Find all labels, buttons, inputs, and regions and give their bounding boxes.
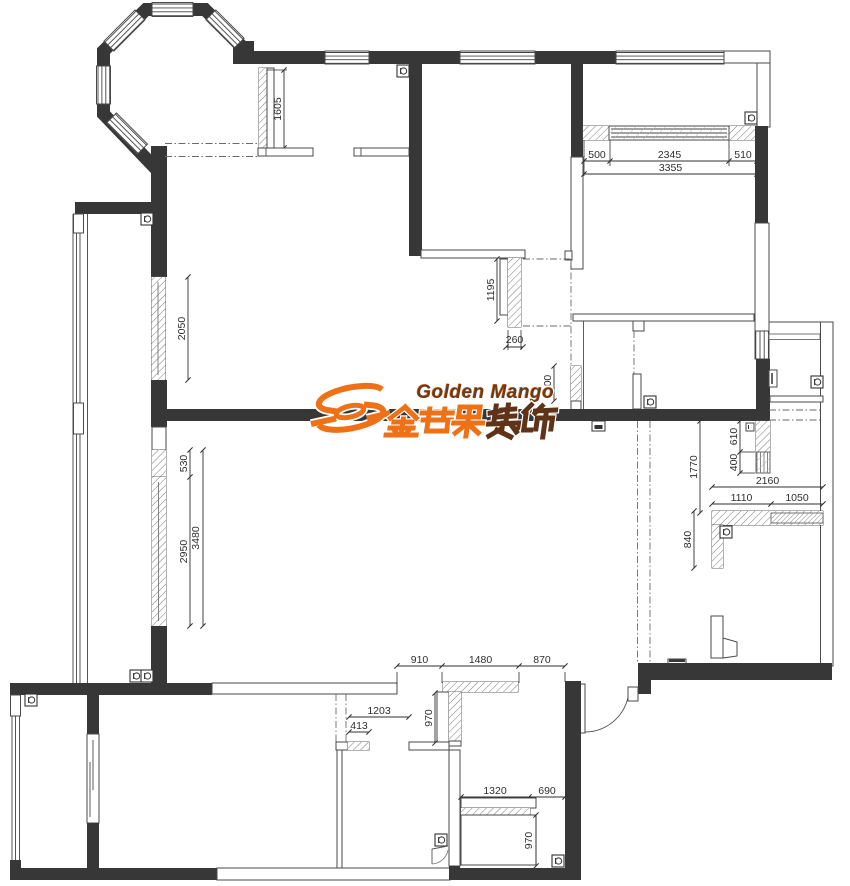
svg-text:910: 910 — [411, 654, 429, 666]
svg-text:Golden Mango: Golden Mango — [416, 382, 554, 403]
svg-text:690: 690 — [538, 785, 556, 797]
svg-text:840: 840 — [682, 531, 694, 549]
svg-text:260: 260 — [506, 334, 524, 346]
svg-text:2160: 2160 — [756, 475, 780, 487]
svg-text:970: 970 — [523, 832, 535, 850]
svg-text:1050: 1050 — [785, 492, 809, 504]
svg-text:1195: 1195 — [485, 279, 497, 302]
svg-text:413: 413 — [350, 720, 368, 732]
svg-text:3480: 3480 — [190, 526, 202, 550]
svg-text:2050: 2050 — [176, 317, 188, 341]
svg-text:1770: 1770 — [688, 455, 700, 479]
svg-text:1605: 1605 — [272, 97, 284, 121]
svg-text:510: 510 — [734, 149, 752, 161]
svg-text:1480: 1480 — [469, 654, 493, 666]
svg-text:530: 530 — [178, 455, 190, 473]
svg-text:1203: 1203 — [367, 705, 391, 717]
svg-text:870: 870 — [533, 654, 551, 666]
svg-text:970: 970 — [423, 709, 435, 727]
svg-text:2345: 2345 — [658, 149, 682, 161]
svg-text:3355: 3355 — [659, 162, 683, 174]
svg-text:500: 500 — [588, 149, 606, 161]
svg-text:2950: 2950 — [178, 540, 190, 564]
svg-text:400: 400 — [728, 454, 740, 472]
svg-text:610: 610 — [728, 428, 740, 446]
svg-text:1110: 1110 — [731, 492, 753, 504]
svg-text:1320: 1320 — [483, 785, 507, 797]
